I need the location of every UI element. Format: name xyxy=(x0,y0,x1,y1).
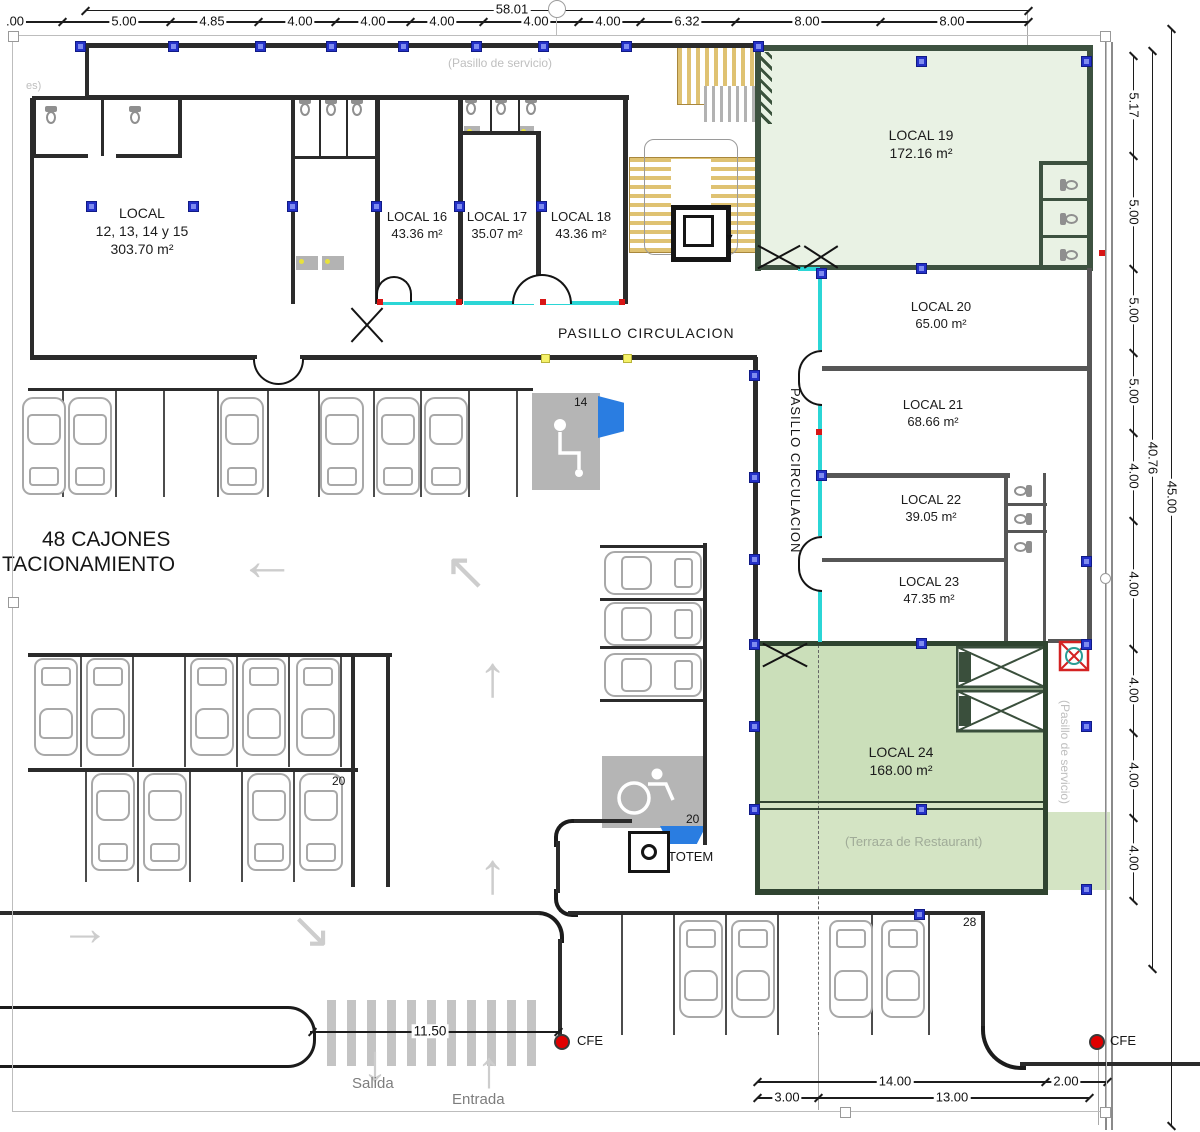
cfe-label-right: CFE xyxy=(1110,1033,1136,1048)
dim-top-segment: 5.00 xyxy=(109,15,138,28)
floor-plan-canvas[interactable]: 58.01 40.76 45.00 (Pasill­o de servicio)… xyxy=(0,0,1200,1132)
dim-line-right-outer xyxy=(1171,28,1172,1125)
dim-right-segment: 4.00 xyxy=(1128,461,1141,490)
resize-handle-bottom-right[interactable] xyxy=(1100,1107,1111,1118)
dim-right-segment: 5.17 xyxy=(1128,90,1141,119)
dim-right-total-outer: 45.00 xyxy=(1166,479,1179,516)
dim-top-segment: 4.00 xyxy=(358,15,387,28)
dim-right-segment: 4.00 xyxy=(1128,760,1141,789)
dim-top-segment: 4.00 xyxy=(593,15,622,28)
dim-right-total-inner: 40.76 xyxy=(1147,440,1160,477)
rotate-handle[interactable] xyxy=(548,0,566,18)
dim-tick xyxy=(1024,17,1033,26)
wall xyxy=(1111,42,1113,1130)
selection-frame xyxy=(12,35,1107,1112)
dim-right-segment: 4.00 xyxy=(1128,569,1141,598)
dim-top-segment: 8.00 xyxy=(792,15,821,28)
resize-handle-left-mid[interactable] xyxy=(8,597,19,608)
dim-right-segment: 5.00 xyxy=(1128,197,1141,226)
resize-handle-top-left[interactable] xyxy=(8,31,19,42)
dim-right-segment: 5.00 xyxy=(1128,376,1141,405)
dim-top-segment: 4.00 xyxy=(521,15,550,28)
dim-top-segment: 4.00 xyxy=(427,15,456,28)
dim-top-segment: 4.85 xyxy=(197,15,226,28)
dim-top-segment: 6.32 xyxy=(672,15,701,28)
dim-right-segment: 5.00 xyxy=(1128,295,1141,324)
dim-top-segment: .00 xyxy=(4,15,26,28)
dim-right-segment: 4.00 xyxy=(1128,675,1141,704)
resize-handle-right-mid[interactable] xyxy=(1100,573,1111,584)
dim-tick xyxy=(81,6,90,15)
rotate-handle-stem xyxy=(556,16,557,35)
dim-right-segment: 4.00 xyxy=(1128,843,1141,872)
resize-handle-bottom-mid[interactable] xyxy=(840,1107,851,1118)
dim-tick xyxy=(1024,6,1033,15)
resize-handle-top-right[interactable] xyxy=(1100,31,1111,42)
dim-top-segment: 8.00 xyxy=(937,15,966,28)
dim-line-right-inner xyxy=(1152,50,1153,968)
dim-top-segment: 4.00 xyxy=(285,15,314,28)
